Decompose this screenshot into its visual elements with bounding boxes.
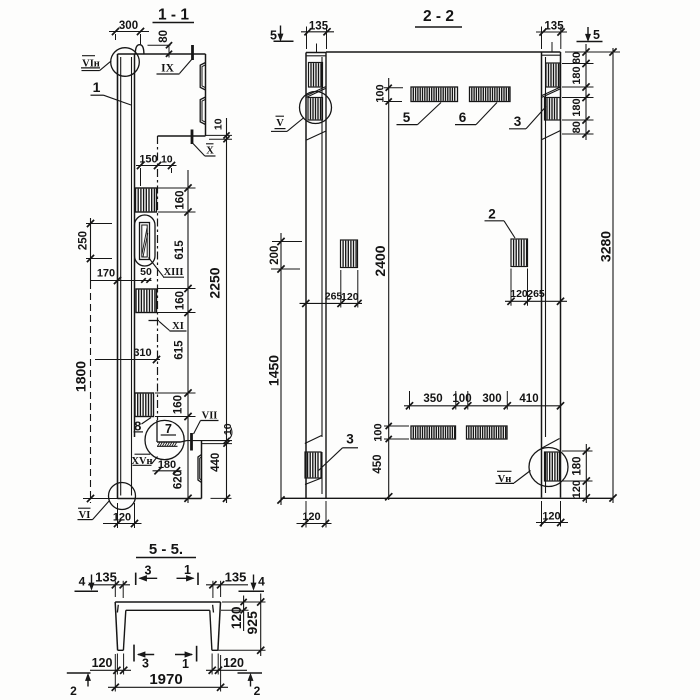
svg-text:120: 120 bbox=[113, 511, 131, 523]
svg-text:310: 310 bbox=[133, 347, 151, 359]
svg-text:180: 180 bbox=[571, 66, 583, 84]
svg-text:300: 300 bbox=[482, 393, 501, 405]
svg-text:4: 4 bbox=[258, 575, 265, 589]
svg-text:5: 5 bbox=[270, 29, 277, 43]
svg-text:2400: 2400 bbox=[372, 245, 388, 276]
svg-text:3: 3 bbox=[142, 657, 149, 671]
svg-text:135: 135 bbox=[309, 20, 329, 32]
svg-text:10: 10 bbox=[161, 153, 173, 165]
svg-text:5: 5 bbox=[593, 28, 600, 42]
svg-text:5 - 5.: 5 - 5. bbox=[149, 541, 183, 558]
svg-text:100: 100 bbox=[452, 393, 471, 405]
svg-text:10: 10 bbox=[213, 118, 225, 130]
svg-text:120: 120 bbox=[92, 656, 113, 670]
svg-text:1: 1 bbox=[184, 563, 191, 577]
svg-text:7: 7 bbox=[165, 422, 172, 436]
svg-text:615: 615 bbox=[174, 240, 186, 260]
svg-text:100: 100 bbox=[374, 84, 386, 102]
svg-text:120: 120 bbox=[302, 511, 320, 523]
svg-text:IX: IX bbox=[161, 62, 174, 74]
svg-text:135: 135 bbox=[225, 569, 247, 584]
svg-text:80: 80 bbox=[158, 30, 170, 43]
svg-text:180: 180 bbox=[571, 98, 583, 116]
svg-text:3: 3 bbox=[346, 431, 354, 446]
svg-text:410: 410 bbox=[519, 393, 538, 405]
svg-text:300: 300 bbox=[119, 20, 138, 32]
svg-text:160: 160 bbox=[174, 291, 186, 310]
svg-text:100: 100 bbox=[372, 423, 384, 441]
svg-text:XI: XI bbox=[172, 321, 184, 332]
svg-text:6: 6 bbox=[459, 110, 467, 125]
svg-text:1: 1 bbox=[182, 657, 189, 671]
svg-text:50: 50 bbox=[140, 266, 152, 278]
svg-text:2 - 2: 2 - 2 bbox=[423, 8, 454, 25]
svg-text:170: 170 bbox=[97, 267, 115, 279]
svg-text:1 - 1: 1 - 1 bbox=[158, 7, 189, 24]
svg-text:V: V bbox=[276, 118, 284, 129]
svg-text:1: 1 bbox=[93, 79, 101, 95]
svg-text:3: 3 bbox=[145, 564, 152, 578]
svg-text:450: 450 bbox=[372, 454, 384, 473]
svg-text:2: 2 bbox=[70, 684, 77, 698]
svg-text:3: 3 bbox=[514, 114, 522, 129]
svg-text:80: 80 bbox=[571, 121, 583, 133]
svg-text:200: 200 bbox=[269, 246, 281, 265]
svg-text:135: 135 bbox=[95, 569, 117, 584]
svg-text:350: 350 bbox=[423, 393, 442, 405]
svg-text:VII: VII bbox=[202, 410, 218, 421]
svg-text:120: 120 bbox=[229, 607, 244, 630]
svg-text:925: 925 bbox=[244, 611, 260, 635]
svg-text:250: 250 bbox=[78, 231, 90, 250]
svg-text:180: 180 bbox=[572, 456, 584, 475]
svg-text:XIII: XIII bbox=[164, 267, 184, 278]
svg-text:1450: 1450 bbox=[266, 355, 282, 386]
svg-text:3280: 3280 bbox=[598, 231, 614, 262]
svg-text:440: 440 bbox=[210, 453, 222, 472]
svg-text:160: 160 bbox=[175, 190, 187, 209]
svg-text:120: 120 bbox=[571, 480, 583, 498]
svg-text:5: 5 bbox=[403, 110, 411, 125]
svg-text:1800: 1800 bbox=[73, 361, 89, 392]
svg-text:1970: 1970 bbox=[149, 671, 182, 688]
svg-text:615: 615 bbox=[173, 340, 185, 360]
svg-text:2: 2 bbox=[488, 206, 496, 221]
svg-text:160: 160 bbox=[172, 395, 184, 414]
svg-text:265: 265 bbox=[325, 290, 343, 302]
svg-text:X: X bbox=[206, 146, 214, 157]
svg-text:80: 80 bbox=[571, 52, 583, 64]
svg-text:2: 2 bbox=[254, 684, 261, 698]
svg-text:8: 8 bbox=[134, 418, 141, 433]
svg-text:4: 4 bbox=[79, 575, 86, 589]
svg-text:120: 120 bbox=[223, 656, 244, 670]
svg-text:2250: 2250 bbox=[207, 267, 223, 298]
